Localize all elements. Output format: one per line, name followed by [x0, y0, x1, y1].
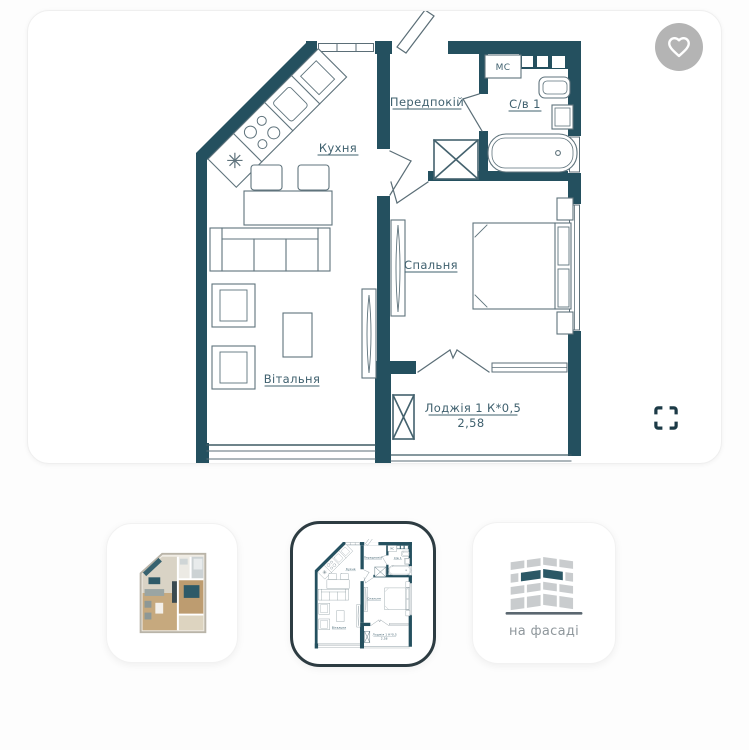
listing-gallery-screen: Кухня Передпокій С/в 1 Спальня Вітальня …	[0, 0, 749, 750]
fullscreen-icon	[653, 400, 679, 436]
thumbnail-2d-plan[interactable]	[290, 521, 436, 667]
fullscreen-button[interactable]	[647, 399, 685, 437]
heart-icon	[666, 34, 692, 60]
favorite-button[interactable]	[655, 23, 703, 71]
floorplan-2d	[28, 11, 721, 463]
main-floorplan-image[interactable]	[27, 10, 722, 464]
building-facade-icon	[497, 547, 591, 619]
3d-plan-preview	[123, 541, 221, 645]
facade-label: на фасаді	[509, 624, 579, 639]
thumbnail-facade[interactable]: на фасаді	[472, 522, 616, 664]
thumbnail-3d-plan[interactable]	[106, 523, 238, 663]
2d-plan-preview	[313, 539, 413, 649]
